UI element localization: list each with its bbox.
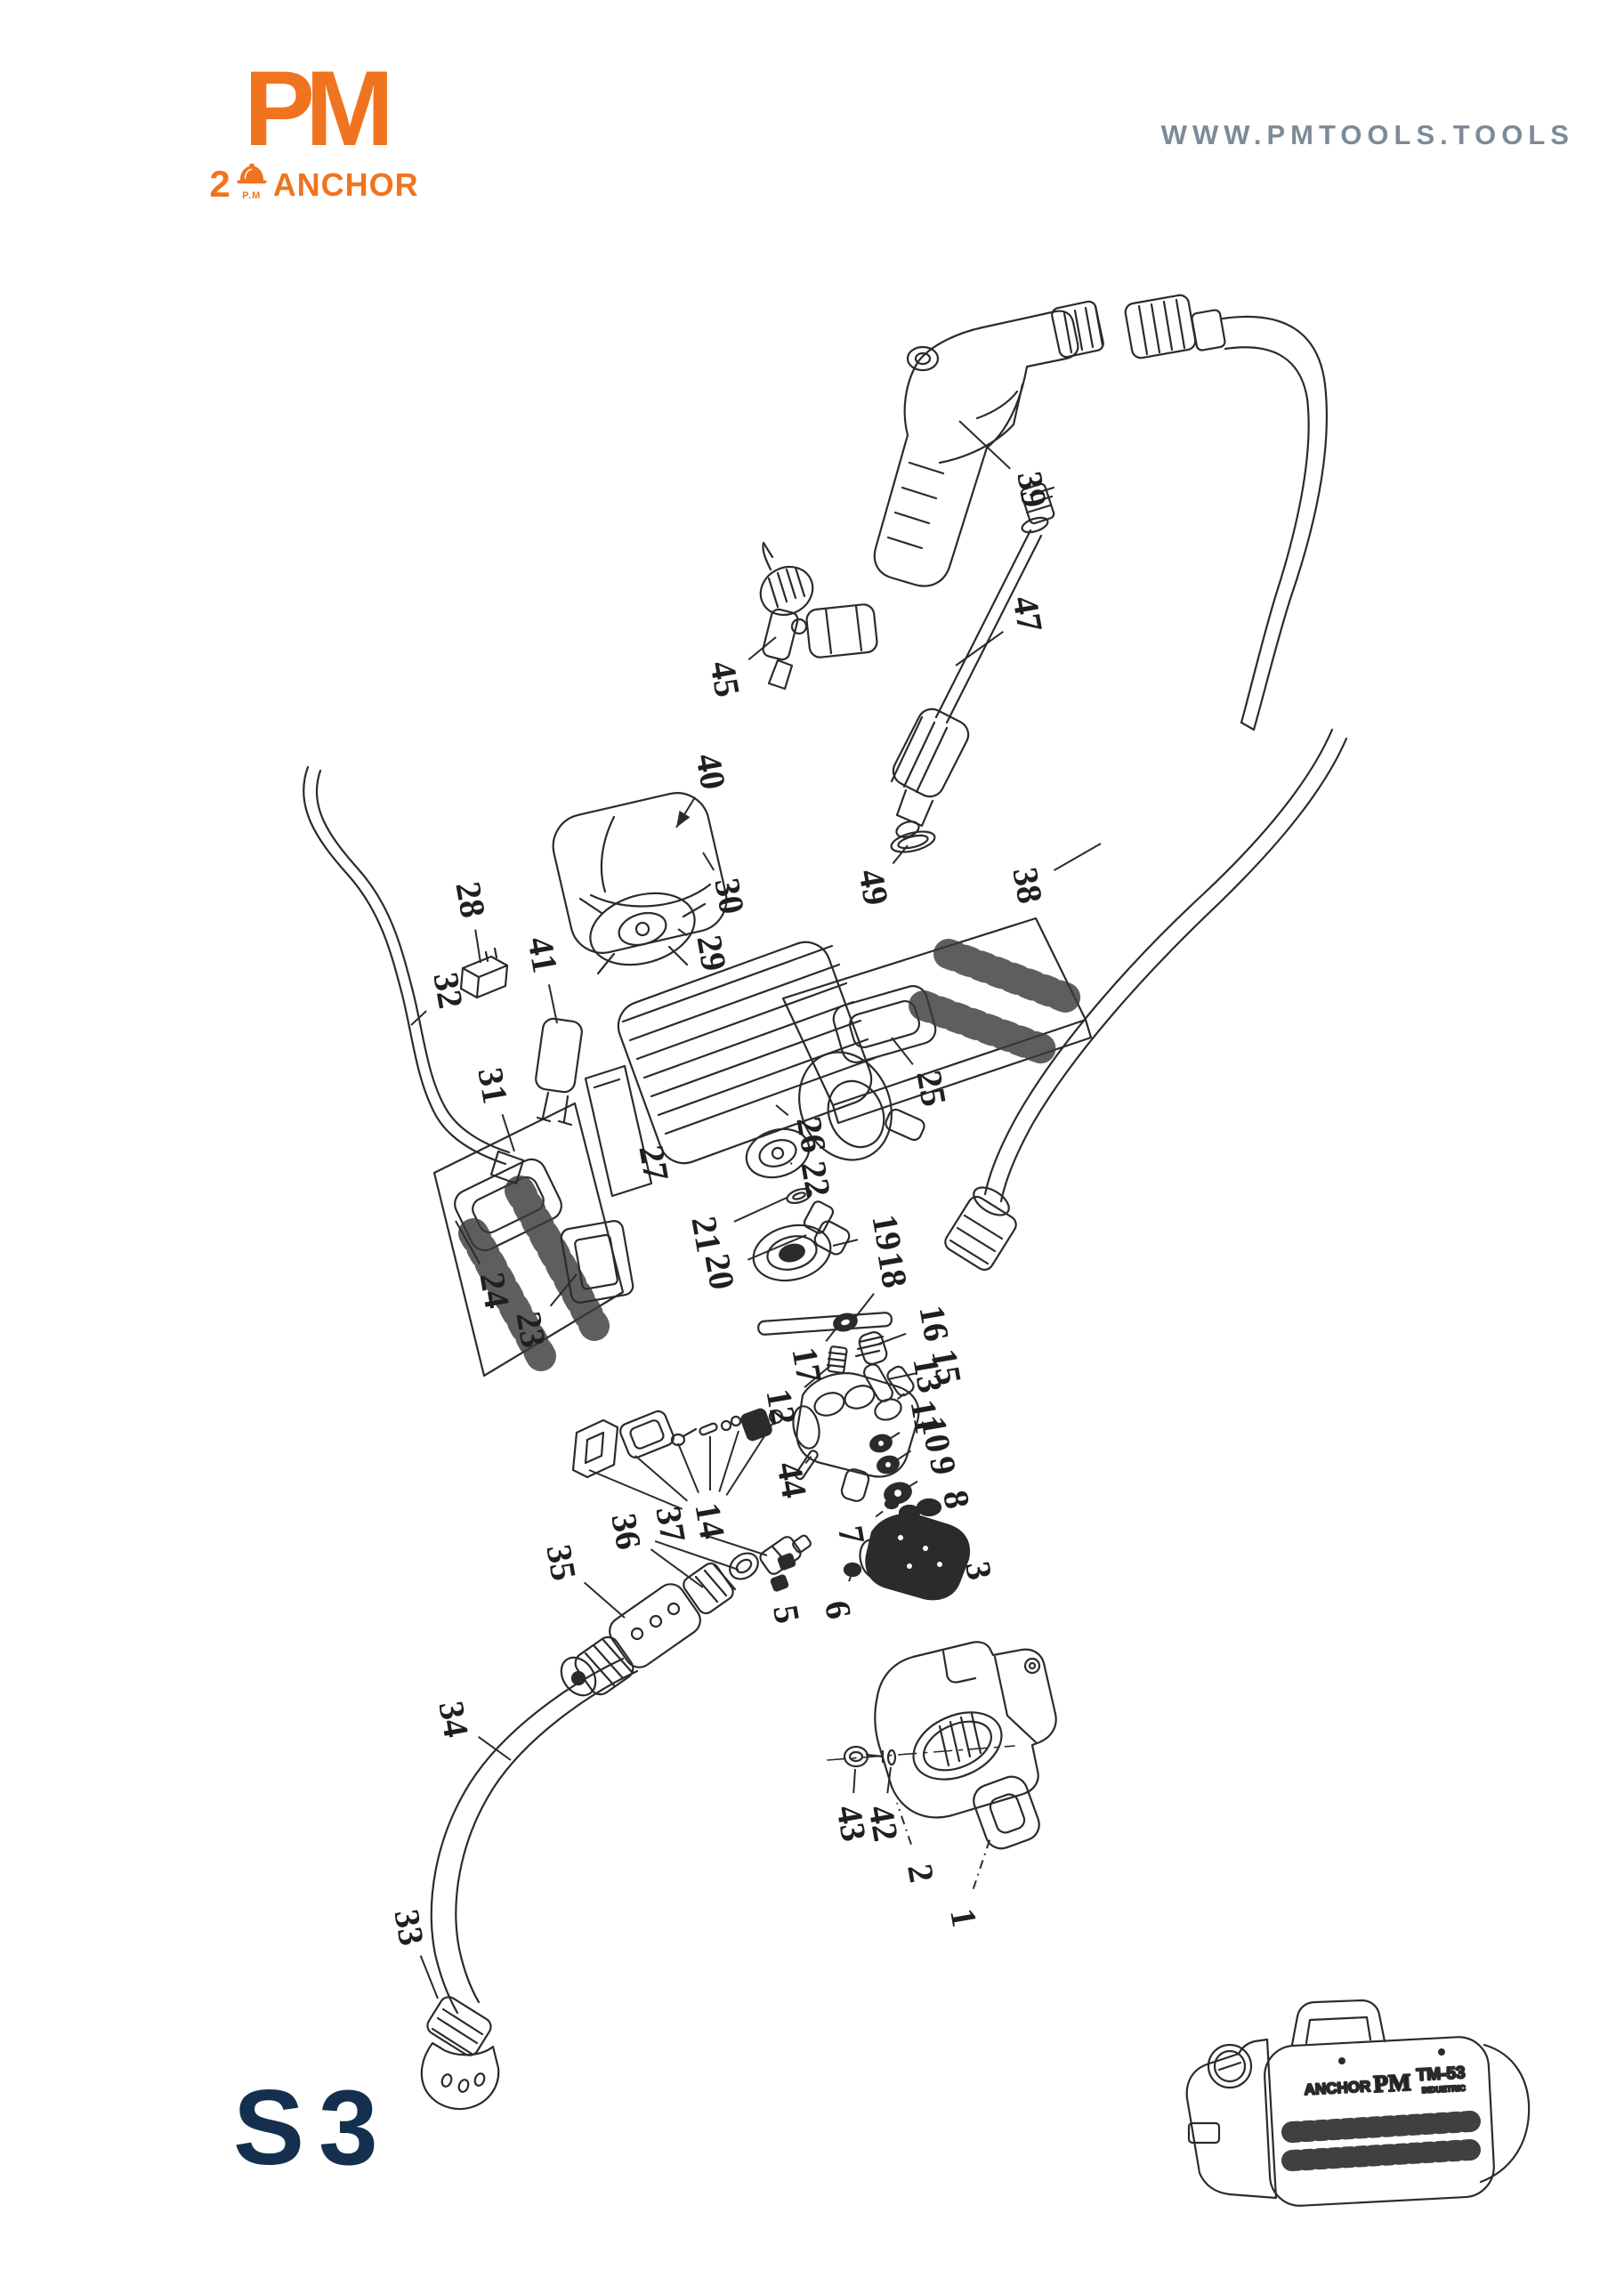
hose-connector [1124,294,1327,730]
part-label-21: 21 [683,1213,729,1255]
catalog-page: PM 2 P.M ANCHOR WWW.PMTOOLS.TOOLS [0,0,1624,2278]
part-label-22: 22 [793,1158,838,1200]
cable-gland [491,1151,523,1183]
part-labels: 3947454030294938283241312726222524232120… [386,468,1054,1948]
pump-body [856,1515,969,1599]
part-label-29: 29 [689,932,734,973]
high-pressure-hose [942,730,1346,1273]
part-label-8: 8 [935,1487,978,1512]
part-label-9: 9 [922,1453,965,1478]
part-label-16: 16 [911,1302,957,1344]
part-label-39: 39 [1009,468,1054,510]
part-label-28: 28 [448,878,493,920]
exploded-parts-diagram: ANCHOR PM TM-53 INDUETRIC 39474540302949… [0,0,1624,2278]
thumb-sub-text: INDUETRIC [1422,2083,1466,2095]
turbo-nozzle [752,543,877,689]
thumb-brand-mark: PM [1373,2069,1411,2097]
part-label-35: 35 [538,1541,584,1583]
part-label-36: 36 [603,1510,649,1552]
part-label-12: 12 [758,1385,804,1427]
part-label-14: 14 [687,1499,732,1541]
part-label-30: 30 [707,875,752,917]
part-label-40: 40 [688,750,733,792]
part-label-2: 2 [900,1861,942,1886]
part-label-42: 42 [860,1802,906,1844]
part-label-34: 34 [431,1698,476,1740]
part-label-6: 6 [817,1597,860,1622]
part-label-26: 26 [788,1113,834,1155]
part-label-5: 5 [765,1602,808,1627]
fan [580,882,705,976]
part-label-44: 44 [769,1458,814,1500]
part-label-13: 13 [905,1353,950,1395]
thumb-model-text: TM-53 [1416,2064,1466,2085]
model-name: S3 [233,2066,392,2189]
part-label-38: 38 [1005,864,1050,906]
part-label-23: 23 [508,1308,553,1350]
part-label-7: 7 [830,1523,873,1547]
part-label-47: 47 [1005,593,1050,634]
part-label-10: 10 [913,1413,958,1455]
thumb-brand-text: ANCHOR [1304,2078,1371,2098]
part-label-41: 41 [520,933,565,975]
part-label-1: 1 [942,1905,985,1930]
part-label-49: 49 [851,866,896,908]
gasket [969,1773,1044,1854]
power-cable [303,767,523,1183]
part-label-37: 37 [648,1503,693,1545]
part-label-18: 18 [869,1248,915,1290]
spray-gun [875,300,1104,586]
part-label-33: 33 [386,1906,432,1948]
part-label-25: 25 [909,1067,954,1109]
fan-cover [547,787,733,959]
part-label-17: 17 [784,1344,829,1385]
part-label-24: 24 [472,1269,517,1311]
part-label-20: 20 [697,1250,742,1292]
part-label-32: 32 [425,969,471,1011]
part-label-27: 27 [631,1142,676,1183]
product-thumbnail: ANCHOR PM TM-53 INDUETRIC [1187,2000,1529,2207]
part-label-45: 45 [702,658,747,699]
part-label-31: 31 [470,1064,515,1106]
lance [888,483,1054,840]
part-label-19: 19 [864,1211,909,1253]
